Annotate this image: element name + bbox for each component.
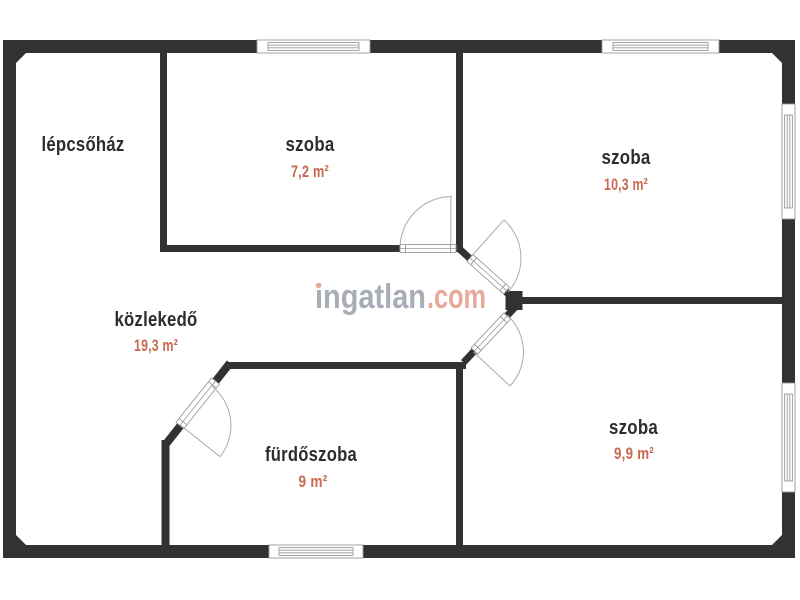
svg-text:szoba: szoba xyxy=(286,134,335,156)
svg-text:lépcsőház: lépcsőház xyxy=(42,134,125,156)
svg-text:ingatlan: ingatlan xyxy=(315,278,426,316)
svg-text:19,3 m²: 19,3 m² xyxy=(134,337,178,355)
svg-text:szoba: szoba xyxy=(602,147,651,169)
svg-text:szoba: szoba xyxy=(609,417,658,439)
svg-text:10,3 m²: 10,3 m² xyxy=(604,176,648,194)
svg-text:fürdőszoba: fürdőszoba xyxy=(265,444,357,466)
svg-text:7,2 m²: 7,2 m² xyxy=(291,163,329,181)
svg-text:9,9 m²: 9,9 m² xyxy=(614,445,654,463)
svg-text:9 m²: 9 m² xyxy=(299,473,328,491)
svg-text:közlekedő: közlekedő xyxy=(115,309,198,331)
svg-text:.com: .com xyxy=(427,278,486,316)
